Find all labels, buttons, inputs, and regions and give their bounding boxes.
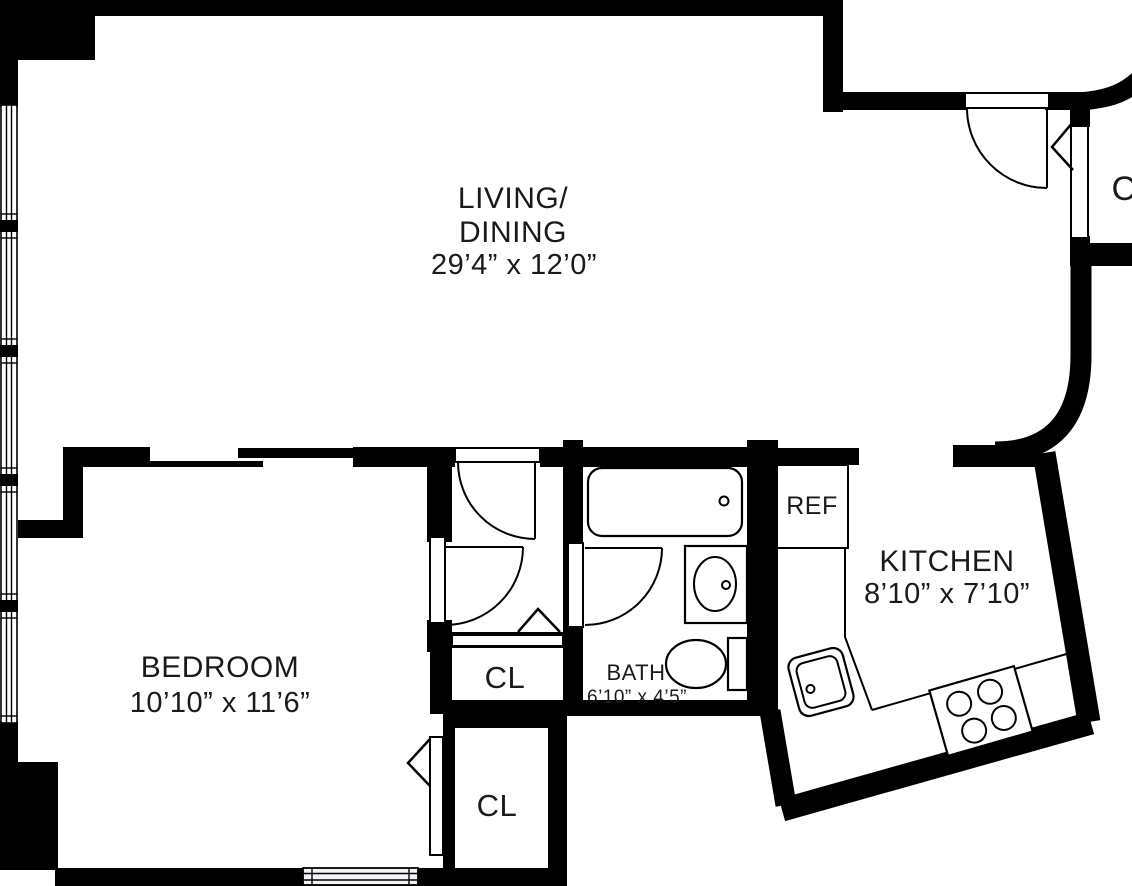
wall-bedroom-north-thin — [150, 461, 263, 467]
wall-bedroom-nw-horizontal — [18, 520, 83, 538]
wall-top-right-step — [823, 0, 843, 112]
kitchen-label: KITCHEN — [879, 545, 1014, 578]
bedroom-label: BEDROOM — [141, 651, 300, 684]
entry-door-leaf — [965, 93, 1049, 108]
wall-foyer-left-upper — [427, 462, 452, 542]
wall-kitchen-left — [762, 440, 778, 718]
living-dining-dimensions: 29’4” x 12’0” — [431, 249, 597, 281]
bathtub — [588, 468, 742, 536]
wall-bedroom-north-a — [63, 447, 150, 467]
entry-closet-label: C — [1111, 170, 1132, 208]
wall-kitchen-top — [747, 448, 859, 465]
window-bedroom-bottom — [303, 868, 418, 885]
bathroom-sink — [685, 546, 747, 623]
wall-hall-closet-bottom — [430, 700, 567, 714]
wall-entry-closet-stub — [1088, 243, 1132, 266]
wall-left-upper — [0, 58, 18, 107]
living-dining-label-line1: LIVING/ — [458, 182, 568, 215]
wall-bath-right — [747, 440, 763, 716]
bath-door-leaf — [568, 543, 583, 627]
bedroom-dimensions: 10’10” x 11’6” — [130, 687, 311, 719]
wall-top — [95, 0, 843, 16]
foyer-door-leaf — [455, 448, 540, 462]
wall-entry-top — [841, 92, 967, 110]
wall-bedroom-closet-left — [443, 713, 455, 868]
bedroom-door-leaf — [430, 537, 445, 623]
wall-sw-corner-block — [0, 762, 58, 870]
toilet-bowl — [666, 640, 726, 688]
living-dining-label-line2: DINING — [459, 216, 567, 249]
toilet — [666, 638, 747, 690]
wall-bedroom-closet-right — [548, 713, 567, 886]
wall-top-left-block — [0, 0, 95, 60]
wall-living-south-bar — [238, 448, 357, 458]
hall-closet-door-leaf — [452, 635, 563, 646]
hall-closet-label: CL — [485, 660, 526, 695]
entry-closet-door-leaf — [1071, 126, 1088, 238]
bath-label: BATH — [606, 660, 665, 685]
wall-bath-top — [565, 447, 765, 467]
bedroom-closet-door-leaf — [430, 737, 443, 855]
floorplan: LIVING/ DINING 29’4” x 12’0” BEDROOM 10’… — [0, 0, 1132, 886]
window-left-strip — [0, 105, 18, 723]
kitchen-dimensions: 8’10” x 7’10” — [864, 578, 1030, 610]
bath-dimensions: 6’10” x 4’5” — [587, 687, 687, 708]
toilet-tank — [728, 638, 747, 690]
bedroom-closet-label: CL — [477, 788, 518, 823]
wall-kitchen-top-stub — [953, 445, 1037, 467]
wall-bedroom-nw-vertical — [63, 467, 83, 522]
refrigerator-label: REF — [786, 492, 838, 520]
